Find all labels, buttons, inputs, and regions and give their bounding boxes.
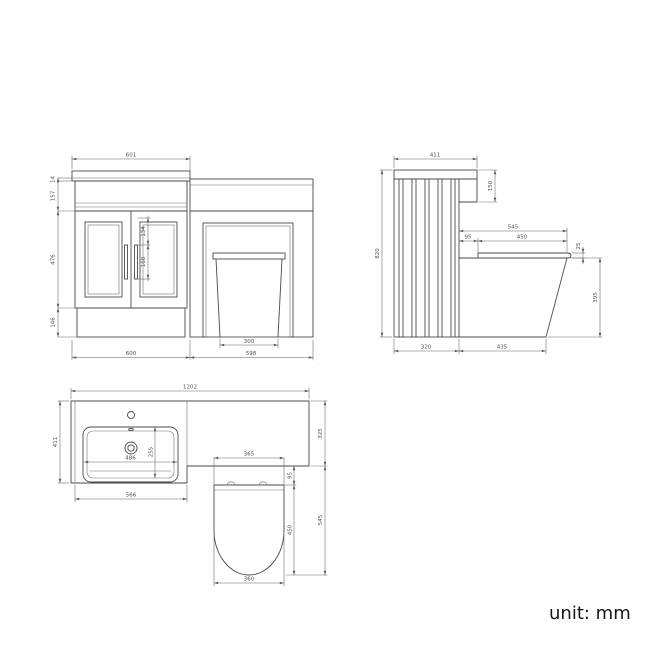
dim-plan-seat-top-width: 365	[244, 452, 255, 458]
dim-plan-seat-gap: 95	[288, 472, 294, 479]
dim-plan-seat-bottom-width: 360	[244, 577, 255, 583]
dim-front-top-width: 601	[126, 153, 137, 159]
dim-plan-basin-width: 486	[125, 456, 136, 462]
dim-side-pan-height: 395	[593, 292, 599, 303]
door-handle-right	[135, 245, 138, 279]
dim-side-worktop-edge: 150	[488, 180, 494, 191]
dim-plan-overall-width: 1202	[183, 385, 197, 391]
front-vanity-unit	[72, 171, 190, 337]
dim-side-seat-gap: 95	[465, 235, 472, 241]
dim-front-handle-offset: 134	[141, 226, 147, 237]
dim-side-height: 820	[375, 248, 381, 259]
dim-plan-vanity-depth: 411	[53, 437, 59, 448]
technical-drawing-page: { "note": { "unit_label": "unit: mm" }, …	[0, 0, 650, 650]
side-elevation-view: 411 820 150 545 95 450 25	[368, 140, 630, 370]
plan-view-drawing: 1202 411 486 255 566 325 545	[50, 380, 350, 602]
dim-side-seat-total: 545	[508, 225, 519, 231]
dim-front-handle-height: 168	[141, 256, 147, 267]
side-cistern-unit	[394, 170, 477, 337]
dim-front-door-height: 476	[51, 254, 57, 265]
dim-side-pan-depth: 435	[497, 345, 508, 351]
door-handle-left	[125, 245, 128, 279]
dim-front-pan-base: 300	[244, 339, 255, 345]
dim-plan-basin-depth: 255	[149, 446, 155, 457]
side-toilet	[459, 253, 571, 337]
dim-side-seat-edge: 25	[576, 242, 582, 249]
front-elevation-view: 601 14 157 476 146 134 168 300	[50, 142, 322, 370]
plan-basin	[83, 412, 178, 483]
plan-view: 1202 411 486 255 566 325 545	[50, 380, 350, 602]
waste-inner	[128, 445, 134, 451]
overflow-slot	[129, 429, 134, 431]
unit-label: unit: mm	[549, 603, 631, 624]
front-elevation-drawing: 601 14 157 476 146 134 168 300	[50, 142, 322, 370]
plan-toilet-seat	[214, 482, 284, 575]
dim-plan-seat-length: 450	[288, 524, 294, 535]
dim-plan-wc-projection: 545	[318, 514, 324, 525]
front-wc-unit	[190, 179, 313, 337]
dim-front-bottom-left: 600	[126, 351, 137, 357]
dim-side-top-depth: 411	[430, 153, 441, 159]
dim-front-apron: 157	[51, 190, 57, 201]
dim-front-plinth: 146	[51, 317, 57, 328]
front-toilet-pan	[213, 253, 285, 337]
dim-side-base-depth: 320	[421, 345, 432, 351]
side-elevation-drawing: 411 820 150 545 95 450 25	[368, 140, 630, 370]
seat-hinges	[227, 482, 267, 485]
tap-hole	[128, 412, 135, 419]
front-dimensions: 601 14 157 476 146 134 168 300	[51, 153, 314, 361]
plan-dimensions: 1202 411 486 255 566 325 545	[53, 385, 327, 587]
waste-outer	[125, 442, 137, 454]
dim-plan-vanity-front: 566	[126, 493, 137, 499]
dim-side-seat-length: 450	[517, 235, 528, 241]
dim-plan-wc-depth: 325	[318, 428, 324, 439]
dim-front-bottom-right: 598	[246, 351, 257, 357]
dim-front-lip: 14	[51, 176, 57, 183]
fluted-panel-lines	[399, 179, 455, 337]
